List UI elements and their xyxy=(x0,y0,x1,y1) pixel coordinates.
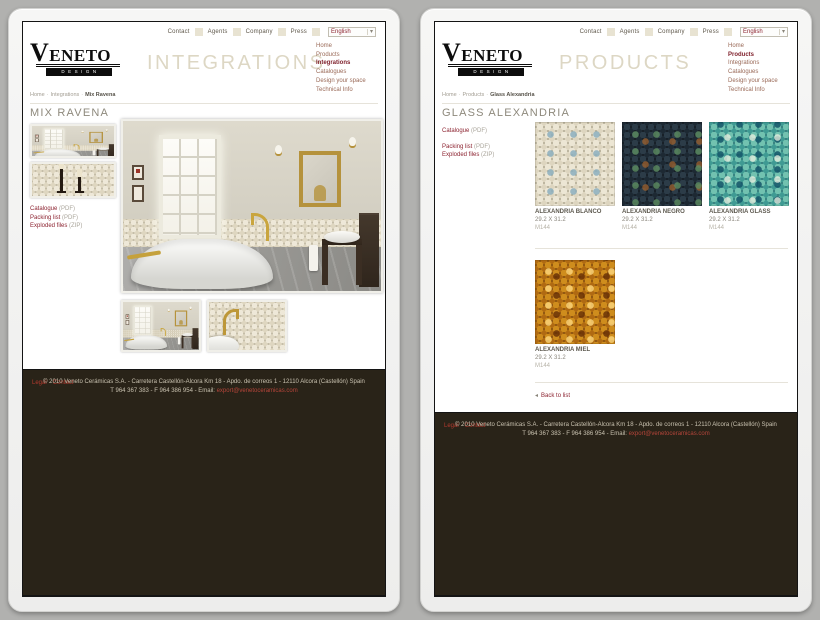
scene-gold-faucet xyxy=(161,328,166,336)
menu-item-home[interactable]: Home xyxy=(316,42,376,51)
language-selected-value: English xyxy=(331,29,351,35)
breadcrumb-products[interactable]: Products xyxy=(463,92,485,98)
scene-window xyxy=(44,129,64,149)
left-browser-panel: Contact Agents Company Press English ▾ V… xyxy=(8,8,400,612)
breadcrumb-separator: · xyxy=(459,92,461,98)
right-content: Contact Agents Company Press English ▾ V… xyxy=(435,22,797,412)
menu-item-catalogues[interactable]: Catalogues xyxy=(728,68,788,77)
scene-framed-picture xyxy=(126,320,130,325)
scene-towel xyxy=(93,150,96,155)
left-footer: Legal-Contact © 2010 Veneto Cerámicas S.… xyxy=(23,369,385,595)
nav-separator-square xyxy=(312,28,320,36)
right-page: Contact Agents Company Press English ▾ V… xyxy=(434,21,798,597)
product-card-alexandria-miel: ALEXANDRIA MIEL 29.2 X 31.2 M144 xyxy=(535,260,615,369)
contact-line: T 964 367 383 - F 964 386 954 - Email: e… xyxy=(23,387,385,396)
logo-subtitle: DESIGN xyxy=(46,68,112,76)
scene-wall-sconce xyxy=(106,129,108,131)
scene-gold-faucet xyxy=(74,144,80,150)
scene-framed-picture xyxy=(35,135,39,138)
nav-separator-square xyxy=(645,28,653,36)
email-link[interactable]: export@venetoceramicas.com xyxy=(217,388,298,394)
menu-item-integrations[interactable]: Integrations xyxy=(316,59,376,68)
language-dropdown[interactable]: English ▾ xyxy=(328,27,376,37)
logo-wordmark: VVENETOENETO xyxy=(30,44,122,64)
scene-mirror xyxy=(89,132,103,143)
scene-towel xyxy=(178,337,181,344)
breadcrumb: Home·Integrations·Mix Ravena xyxy=(30,92,378,104)
page-title: INTEGRATIONS xyxy=(147,52,326,75)
product-card-alexandria-negro: ALEXANDRIA NEGRO 29.2 X 31.2 M144 xyxy=(622,122,702,231)
logo-wordmark: VVENETOENETO xyxy=(442,44,534,64)
product-size: 29.2 X 31.2 xyxy=(535,217,615,223)
back-to-list-link[interactable]: ◂ Back to list xyxy=(535,392,570,399)
bathroom-scene-illustration xyxy=(123,121,381,291)
nav-separator-square xyxy=(724,28,732,36)
nav-separator-square xyxy=(690,28,698,36)
menu-item-products[interactable]: Products xyxy=(316,51,376,60)
site-menu: Home Products Integrations Catalogues De… xyxy=(728,42,788,94)
row-divider xyxy=(535,248,788,249)
tile-swatch-blanco[interactable] xyxy=(535,122,615,206)
scene-window xyxy=(134,306,152,335)
logo-subtitle: DESIGN xyxy=(458,68,524,76)
thumbnail-candles[interactable] xyxy=(30,162,116,198)
candle xyxy=(77,169,82,177)
gallery-thumbnails xyxy=(121,300,287,352)
faucet-basin xyxy=(207,336,239,352)
document-links: Catalogue (PDF) Packing list (PDF) Explo… xyxy=(30,205,118,231)
nav-agents[interactable]: Agents xyxy=(208,29,228,35)
scene-wall-sconce xyxy=(168,309,170,312)
product-size: 29.2 X 31.2 xyxy=(535,355,615,361)
nav-press[interactable]: Press xyxy=(703,29,719,35)
scene-vanity xyxy=(182,335,194,348)
candlestick-icon xyxy=(78,177,81,193)
scene-mirror xyxy=(175,310,187,326)
exploded-files-link[interactable]: Exploded files (ZIP) xyxy=(30,222,118,231)
bathroom-scene-illustration xyxy=(123,302,199,350)
breadcrumb-separator: · xyxy=(486,92,488,98)
page-title: PRODUCTS xyxy=(559,52,691,75)
nav-separator-square xyxy=(278,28,286,36)
language-selected-value: English xyxy=(743,29,763,35)
back-arrow-icon: ◂ xyxy=(535,392,538,399)
scene-wall-sconce xyxy=(275,145,282,154)
document-links: Catalogue (PDF) Packing list (PDF) Explo… xyxy=(442,127,530,160)
breadcrumb-home[interactable]: Home xyxy=(442,92,457,98)
site-menu: Home Products Integrations Catalogues De… xyxy=(316,42,376,94)
copyright-line: © 2010 Veneto Cerámicas S.A. - Carretera… xyxy=(435,421,797,430)
packing-list-link[interactable]: Packing list (PDF) xyxy=(442,143,530,152)
bathroom-scene-illustration xyxy=(32,126,116,158)
menu-item-design-your-space[interactable]: Design your space xyxy=(728,77,788,86)
menu-item-products[interactable]: Products xyxy=(728,51,788,60)
product-code: M144 xyxy=(622,225,702,231)
scene-vanity xyxy=(322,239,362,285)
product-code: M144 xyxy=(535,363,615,369)
veneto-logo[interactable]: VVENETOENETO DESIGN xyxy=(442,44,534,76)
scene-wall-sconce xyxy=(349,137,356,146)
gold-faucet-icon xyxy=(223,309,239,335)
breadcrumb-current: Glass Alexandria xyxy=(490,92,534,98)
tile-swatch-glass[interactable] xyxy=(709,122,789,206)
thumbnail-faucet-detail[interactable] xyxy=(207,300,287,352)
top-nav: Contact Agents Company Press English ▾ xyxy=(580,27,788,37)
menu-item-design-your-space[interactable]: Design your space xyxy=(316,77,376,86)
thumbnail-bathroom-scene-small[interactable] xyxy=(121,300,201,352)
candle xyxy=(59,162,64,169)
email-link[interactable]: export@venetoceramicas.com xyxy=(629,431,710,437)
nav-press[interactable]: Press xyxy=(291,29,307,35)
chevron-down-icon: ▾ xyxy=(779,29,785,35)
catalogue-link[interactable]: Catalogue (PDF) xyxy=(442,127,530,136)
scene-framed-picture xyxy=(132,185,144,202)
product-code: M144 xyxy=(535,225,615,231)
menu-item-home[interactable]: Home xyxy=(728,42,788,51)
nav-contact[interactable]: Contact xyxy=(580,29,602,35)
nav-company[interactable]: Company xyxy=(246,29,273,35)
breadcrumb: Home·Products·Glass Alexandria xyxy=(442,92,790,104)
product-name: ALEXANDRIA BLANCO xyxy=(535,209,615,215)
language-dropdown[interactable]: English ▾ xyxy=(740,27,788,37)
tile-swatch-miel[interactable] xyxy=(535,260,615,344)
product-name: ALEXANDRIA GLASS xyxy=(709,209,789,215)
back-to-list-label: Back to list xyxy=(541,393,570,399)
breadcrumb-home[interactable]: Home xyxy=(30,92,45,98)
scene-bathtub xyxy=(35,149,81,158)
left-page: Contact Agents Company Press English ▾ V… xyxy=(22,21,386,597)
copyright-line: © 2010 Veneto Cerámicas S.A. - Carretera… xyxy=(23,378,385,387)
breadcrumb-integrations[interactable]: Integrations xyxy=(51,92,80,98)
scene-bathtub xyxy=(125,335,167,349)
nav-contact[interactable]: Contact xyxy=(168,29,190,35)
spacer xyxy=(442,136,530,143)
breadcrumb-separator: · xyxy=(47,92,49,98)
top-nav: Contact Agents Company Press English ▾ xyxy=(168,27,376,37)
scene-framed-picture xyxy=(35,139,39,142)
scene-framed-picture xyxy=(132,165,144,180)
product-size: 29.2 X 31.2 xyxy=(709,217,789,223)
row-divider xyxy=(535,382,788,383)
breadcrumb-separator: · xyxy=(81,92,83,98)
nav-agents[interactable]: Agents xyxy=(620,29,640,35)
product-size: 29.2 X 31.2 xyxy=(622,217,702,223)
right-browser-panel: Contact Agents Company Press English ▾ V… xyxy=(420,8,812,612)
tile-swatch-negro[interactable] xyxy=(622,122,702,206)
nav-separator-square xyxy=(607,28,615,36)
menu-item-integrations[interactable]: Integrations xyxy=(728,59,788,68)
product-card-alexandria-glass: ALEXANDRIA GLASS 29.2 X 31.2 M144 xyxy=(709,122,789,231)
scene-basin xyxy=(97,148,109,150)
left-content: Contact Agents Company Press English ▾ V… xyxy=(23,22,385,369)
nav-separator-square xyxy=(195,28,203,36)
product-card-alexandria-blanco: ALEXANDRIA BLANCO 29.2 X 31.2 M144 xyxy=(535,122,615,231)
scene-vanity xyxy=(97,149,110,158)
exploded-files-link[interactable]: Exploded files (ZIP) xyxy=(442,151,530,160)
veneto-logo[interactable]: VVENETOENETO DESIGN xyxy=(30,44,122,76)
contact-line: T 964 367 383 - F 964 386 954 - Email: e… xyxy=(435,430,797,439)
scene-basin xyxy=(324,231,360,243)
scene-basin xyxy=(182,333,193,336)
menu-item-catalogues[interactable]: Catalogues xyxy=(316,68,376,77)
scene-mirror xyxy=(299,151,341,207)
right-footer: Legal-Contact © 2010 Veneto Cerámicas S.… xyxy=(435,412,797,595)
scene-framed-picture xyxy=(126,314,130,318)
scene-cabinet xyxy=(359,213,379,287)
catalogue-link[interactable]: Catalogue (PDF) xyxy=(30,205,118,214)
candlestick-icon xyxy=(60,169,63,193)
main-product-image xyxy=(121,119,383,293)
section-heading: GLASS ALEXANDRIA xyxy=(442,107,570,119)
thumbnail-bathroom-scene[interactable] xyxy=(30,124,116,158)
product-name: ALEXANDRIA MIEL xyxy=(535,347,615,353)
scene-wall-sconce xyxy=(81,131,83,133)
nav-company[interactable]: Company xyxy=(658,29,685,35)
chevron-down-icon: ▾ xyxy=(367,29,373,35)
section-heading: MIX RAVENA xyxy=(30,107,109,119)
product-name: ALEXANDRIA NEGRO xyxy=(622,209,702,215)
packing-list-link[interactable]: Packing list (PDF) xyxy=(30,214,118,223)
footer-copyright: © 2010 Veneto Cerámicas S.A. - Carretera… xyxy=(435,421,797,439)
footer-copyright: © 2010 Veneto Cerámicas S.A. - Carretera… xyxy=(23,378,385,396)
breadcrumb-current: Mix Ravena xyxy=(85,92,115,98)
nav-separator-square xyxy=(233,28,241,36)
scene-towel xyxy=(309,245,318,271)
scene-wall-sconce xyxy=(190,307,192,310)
product-code: M144 xyxy=(709,225,789,231)
scene-window xyxy=(159,135,221,239)
